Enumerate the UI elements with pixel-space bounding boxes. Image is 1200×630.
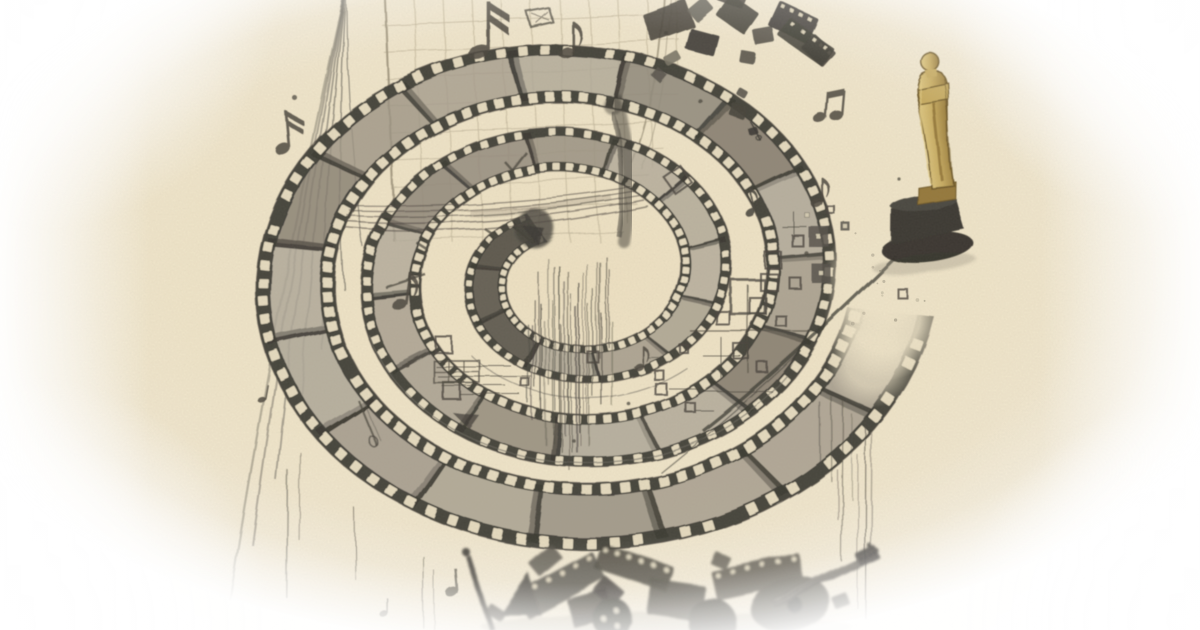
sketch-canvas — [0, 0, 1200, 630]
edge-vignette — [0, 0, 1200, 630]
hero-illustration: Pencil-sketch illustration on cream pape… — [0, 0, 1200, 630]
